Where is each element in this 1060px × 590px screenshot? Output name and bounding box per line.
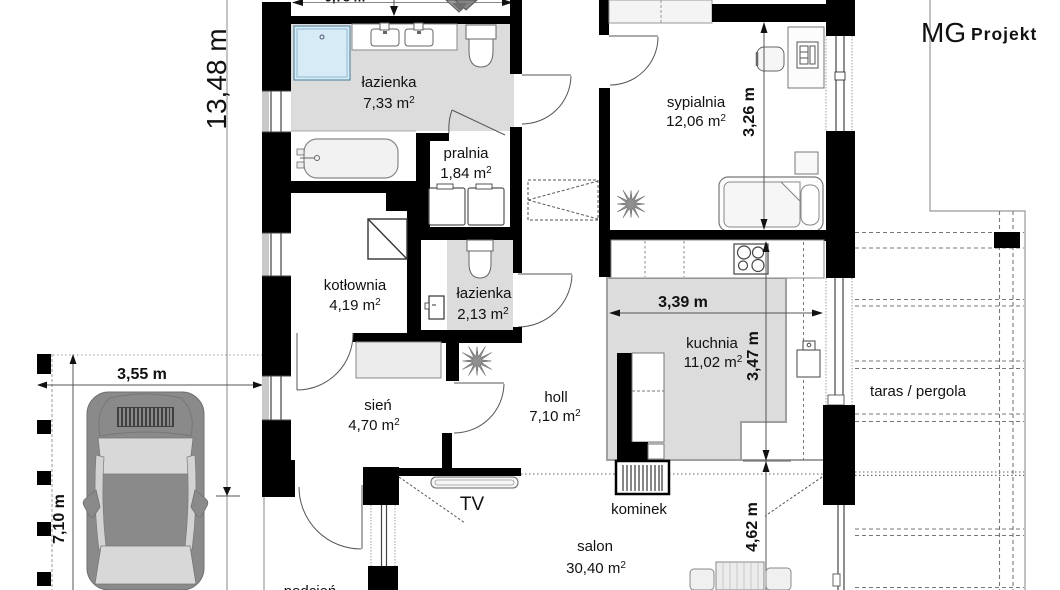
svg-text:TV: TV: [460, 494, 485, 515]
svg-text:3,47 m: 3,47 m: [745, 331, 762, 381]
svg-text:3,26 m: 3,26 m: [741, 87, 758, 137]
svg-text:salon: salon: [577, 538, 613, 555]
svg-text:MG: MG: [921, 17, 966, 48]
svg-text:12,06 m2: 12,06 m2: [666, 113, 726, 130]
svg-text:łazienka: łazienka: [361, 74, 417, 91]
svg-text:13,48 m: 13,48 m: [201, 28, 232, 129]
svg-text:kuchnia: kuchnia: [686, 335, 738, 352]
svg-text:pralnia: pralnia: [443, 145, 489, 162]
svg-text:7,10 m2: 7,10 m2: [529, 408, 581, 425]
svg-text:7,10 m: 7,10 m: [51, 494, 68, 544]
svg-text:sień: sień: [364, 397, 392, 414]
svg-text:kominek: kominek: [611, 501, 667, 518]
svg-text:podcień: podcień: [284, 583, 337, 590]
svg-text:7,33 m2: 7,33 m2: [363, 95, 415, 112]
svg-text:2,13 m2: 2,13 m2: [457, 306, 509, 323]
svg-text:9,78 m: 9,78 m: [325, 0, 365, 5]
svg-text:4,70 m2: 4,70 m2: [348, 417, 400, 434]
svg-text:sypialnia: sypialnia: [667, 94, 726, 111]
svg-text:11,02 m2: 11,02 m2: [684, 354, 743, 371]
svg-text:3,39 m: 3,39 m: [658, 294, 708, 311]
svg-text:taras / pergola: taras / pergola: [870, 383, 967, 400]
svg-text:łazienka: łazienka: [456, 285, 512, 302]
svg-text:3,55 m: 3,55 m: [117, 366, 167, 383]
svg-text:kotłownia: kotłownia: [324, 277, 387, 294]
svg-text:holl: holl: [544, 389, 567, 406]
svg-text:Projekt: Projekt: [971, 24, 1037, 44]
svg-text:4,62 m: 4,62 m: [744, 502, 761, 552]
svg-text:30,40 m2: 30,40 m2: [566, 560, 626, 577]
svg-text:1,84 m2: 1,84 m2: [440, 165, 492, 182]
svg-text:4,19 m2: 4,19 m2: [329, 297, 381, 314]
